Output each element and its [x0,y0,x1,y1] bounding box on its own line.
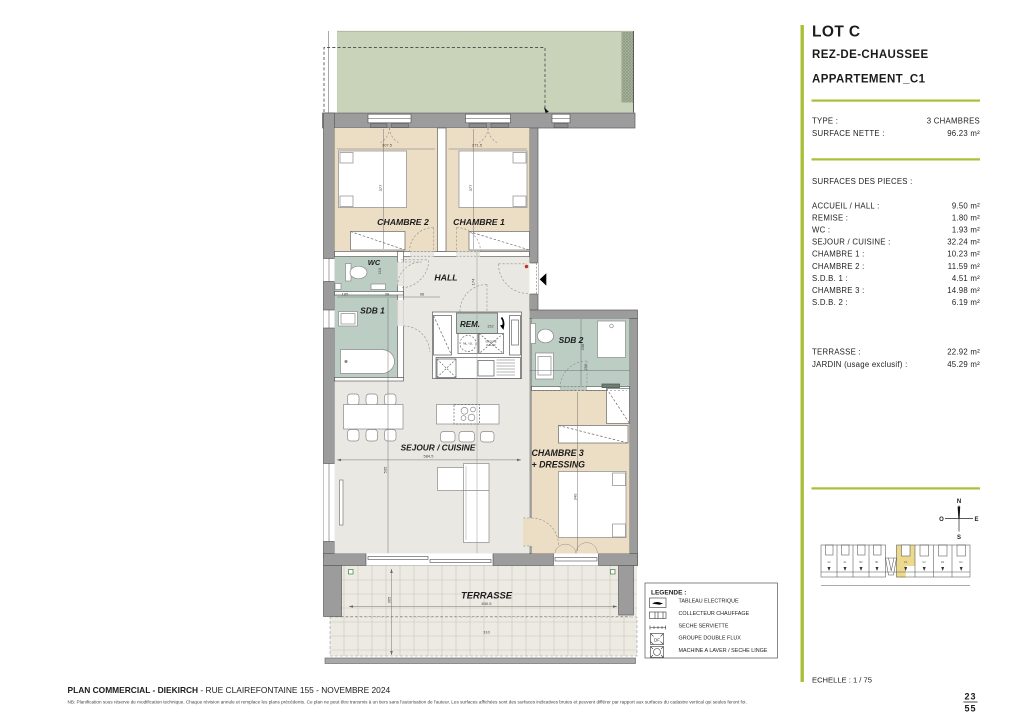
svg-text:208: 208 [580,343,585,350]
svg-text:377: 377 [378,184,383,191]
svg-text:3 CHAMBRES: 3 CHAMBRES [927,117,980,126]
svg-text:152: 152 [487,324,494,329]
svg-text:ECHELLE : 1 / 75: ECHELLE : 1 / 75 [812,676,872,685]
svg-text:REMISE :: REMISE : [812,213,848,222]
svg-text:11.59 m²: 11.59 m² [948,262,980,271]
svg-text:D1: D1 [959,560,963,564]
svg-text:C2: C2 [922,560,926,564]
svg-text:10.23 m²: 10.23 m² [947,250,980,259]
svg-text:NB: Planification sous réserve: NB: Planification sous réserve de modifi… [68,700,747,705]
svg-text:185: 185 [342,292,349,297]
svg-text:TYPE :: TYPE : [812,117,838,126]
svg-text:96: 96 [420,292,425,297]
svg-text:S.D.B. 1 :: S.D.B. 1 : [812,274,848,283]
svg-text:D.FLUX: D.FLUX [486,343,495,347]
svg-text:GROUPE: GROUPE [485,340,497,344]
svg-text:B1: B1 [875,560,879,564]
svg-text:4.51 m²: 4.51 m² [952,274,980,283]
svg-text:SDB 2: SDB 2 [559,335,584,345]
svg-text:MACHINE A LAVER / SECHE LINGE: MACHINE A LAVER / SECHE LINGE [679,648,768,654]
svg-text:COLLECTEUR CHAUFFAGE: COLLECTEUR CHAUFFAGE [679,611,750,617]
svg-text:S.D.B. 2 :: S.D.B. 2 : [812,298,848,307]
svg-text:TERRASSE: TERRASSE [461,590,513,601]
svg-text:A2: A2 [827,560,831,564]
svg-text:CHAMBRE 1: CHAMBRE 1 [453,217,505,227]
svg-text:1.93 m²: 1.93 m² [952,226,980,235]
svg-text:SEJOUR / CUISINE :: SEJOUR / CUISINE : [812,238,891,247]
svg-text:110: 110 [377,267,382,274]
svg-text:N: N [957,499,961,505]
svg-text:REZ-DE-CHAUSSEE: REZ-DE-CHAUSSEE [812,49,929,61]
svg-text:WC: WC [368,258,381,267]
svg-text:271.5: 271.5 [472,143,483,148]
svg-text:LOT C: LOT C [812,24,861,41]
svg-text:SURFACE NETTE :: SURFACE NETTE : [812,129,885,138]
svg-text:96.23 m²: 96.23 m² [947,129,980,138]
svg-text:GROUPE DOUBLE FLUX: GROUPE DOUBLE FLUX [679,636,742,642]
svg-text:505: 505 [383,466,388,473]
svg-text:830.5: 830.5 [481,601,492,606]
svg-text:45.29 m²: 45.29 m² [947,360,980,369]
svg-text:ACCUEIL / HALL :: ACCUEIL / HALL : [812,201,880,210]
svg-text:23: 23 [964,692,976,702]
svg-text:340: 340 [573,493,578,500]
svg-text:174: 174 [471,278,476,285]
svg-text:A1: A1 [843,560,847,564]
svg-text:WC :: WC : [812,226,830,235]
svg-text:REM.: REM. [460,320,480,329]
svg-text:HALL: HALL [434,273,457,283]
svg-text:307.5: 307.5 [382,143,393,148]
svg-text:22.92 m²: 22.92 m² [947,348,980,357]
svg-text:55: 55 [964,704,976,714]
svg-text:APPARTEMENT_C1: APPARTEMENT_C1 [812,74,926,86]
svg-text:B2: B2 [859,560,863,564]
svg-text:584.5: 584.5 [423,454,434,459]
svg-text:SEJOUR / CUISINE: SEJOUR / CUISINE [401,443,476,453]
svg-text:377: 377 [468,184,473,191]
svg-text:CHAMBRE 2 :: CHAMBRE 2 : [812,262,865,271]
svg-text:D2: D2 [941,560,945,564]
svg-text:S: S [957,535,961,541]
svg-text:32.24 m²: 32.24 m² [947,238,980,247]
svg-text:E: E [974,517,978,523]
svg-text:PLAN COMMERCIAL - DIEKIRCH - R: PLAN COMMERCIAL - DIEKIRCH - RUE CLAIREF… [68,685,391,695]
svg-text:JARDIN (usage exclusif) :: JARDIN (usage exclusif) : [812,360,908,369]
svg-text:O: O [939,517,944,523]
svg-text:SURFACES DES PIECES :: SURFACES DES PIECES : [812,177,913,186]
svg-text:DF: DF [654,638,660,643]
svg-text:SECHE SERVIETTE: SECHE SERVIETTE [679,623,729,629]
svg-text:38: 38 [385,292,390,297]
svg-text:256: 256 [583,363,588,370]
svg-text:1.80 m²: 1.80 m² [952,213,980,222]
svg-text:CHAMBRE 3 :: CHAMBRE 3 : [812,286,865,295]
svg-text:CHAMBRE 2: CHAMBRE 2 [377,217,429,227]
svg-text:14.98 m²: 14.98 m² [947,286,980,295]
svg-text:310: 310 [483,630,490,635]
svg-text:TABLEAU ELECTRIQUE: TABLEAU ELECTRIQUE [679,599,740,605]
svg-text:C1: C1 [904,560,908,564]
svg-text:CHAMBRE 1 :: CHAMBRE 1 : [812,250,865,259]
svg-text:TERRASSE :: TERRASSE : [812,348,861,357]
svg-text:ML / SL: ML / SL [463,342,473,346]
svg-text:SDB 1: SDB 1 [360,306,385,316]
svg-text:CHAMBRE 3: CHAMBRE 3 [532,448,584,458]
svg-text:+ DRESSING: + DRESSING [532,460,586,470]
svg-text:6.19 m²: 6.19 m² [952,298,980,307]
svg-text:LEGENDE :: LEGENDE : [651,590,686,597]
svg-text:9.50 m²: 9.50 m² [952,201,980,210]
svg-text:365: 365 [387,596,392,603]
